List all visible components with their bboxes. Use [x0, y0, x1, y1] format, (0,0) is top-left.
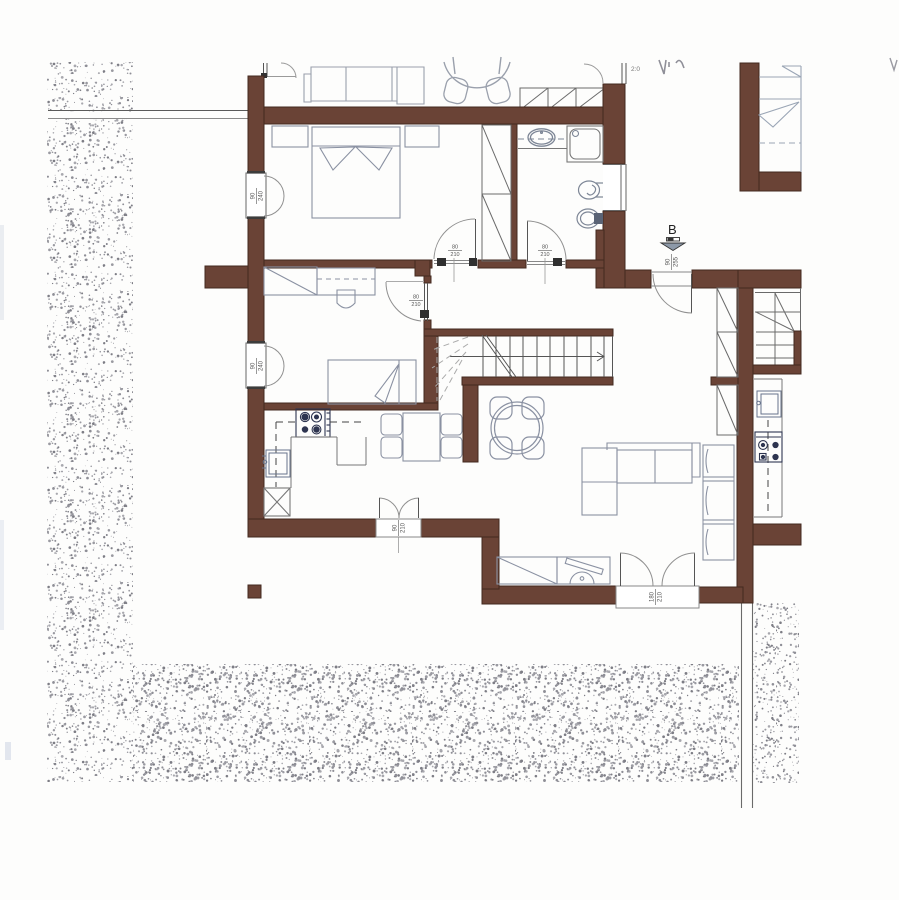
svg-text:180: 180 [650, 591, 656, 602]
svg-text:210: 210 [411, 302, 420, 308]
svg-text:2:0: 2:0 [631, 66, 640, 73]
svg-text:210: 210 [658, 591, 664, 602]
svg-text:90: 90 [666, 258, 672, 265]
svg-text:B: B [668, 222, 677, 237]
svg-text:210: 210 [540, 252, 549, 258]
svg-text:90: 90 [251, 362, 257, 369]
svg-text:80: 80 [542, 245, 548, 251]
svg-text:80: 80 [452, 245, 458, 251]
svg-text:80: 80 [413, 295, 419, 301]
svg-text:90: 90 [393, 524, 399, 531]
svg-text:255: 255 [674, 256, 680, 267]
svg-text:240: 240 [259, 360, 265, 371]
svg-text:210: 210 [401, 522, 407, 533]
svg-text:90: 90 [251, 192, 257, 199]
svg-text:240: 240 [259, 190, 265, 201]
svg-text:210: 210 [450, 252, 459, 258]
